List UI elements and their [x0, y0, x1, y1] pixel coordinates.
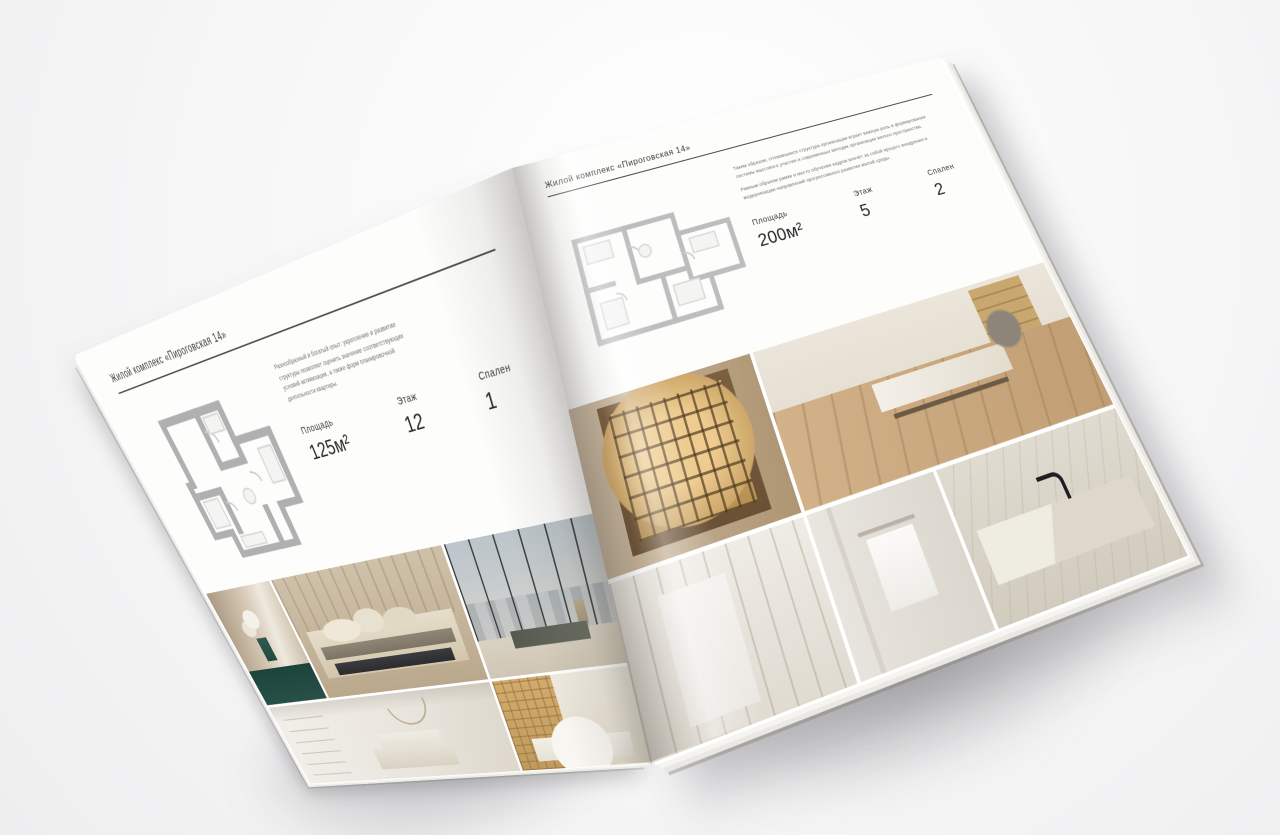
brochure-mockup-scene: Жилой комплекс «Пироговская 14» — [0, 0, 1280, 835]
stat-floor: Этаж 5 — [852, 185, 884, 223]
stat-bedrooms: Спален 1 — [477, 360, 522, 417]
apartment-description: Разнообразный и богатый опыт: укрепление… — [272, 314, 420, 404]
stat-floor: Этаж 12 — [395, 390, 429, 440]
stat-area: Площадь 200м² — [751, 206, 807, 252]
stat-bedrooms: Спален 2 — [926, 162, 967, 201]
stat-area: Площадь 125м² — [299, 413, 355, 466]
photo-bathroom-gold-wall — [492, 665, 652, 770]
